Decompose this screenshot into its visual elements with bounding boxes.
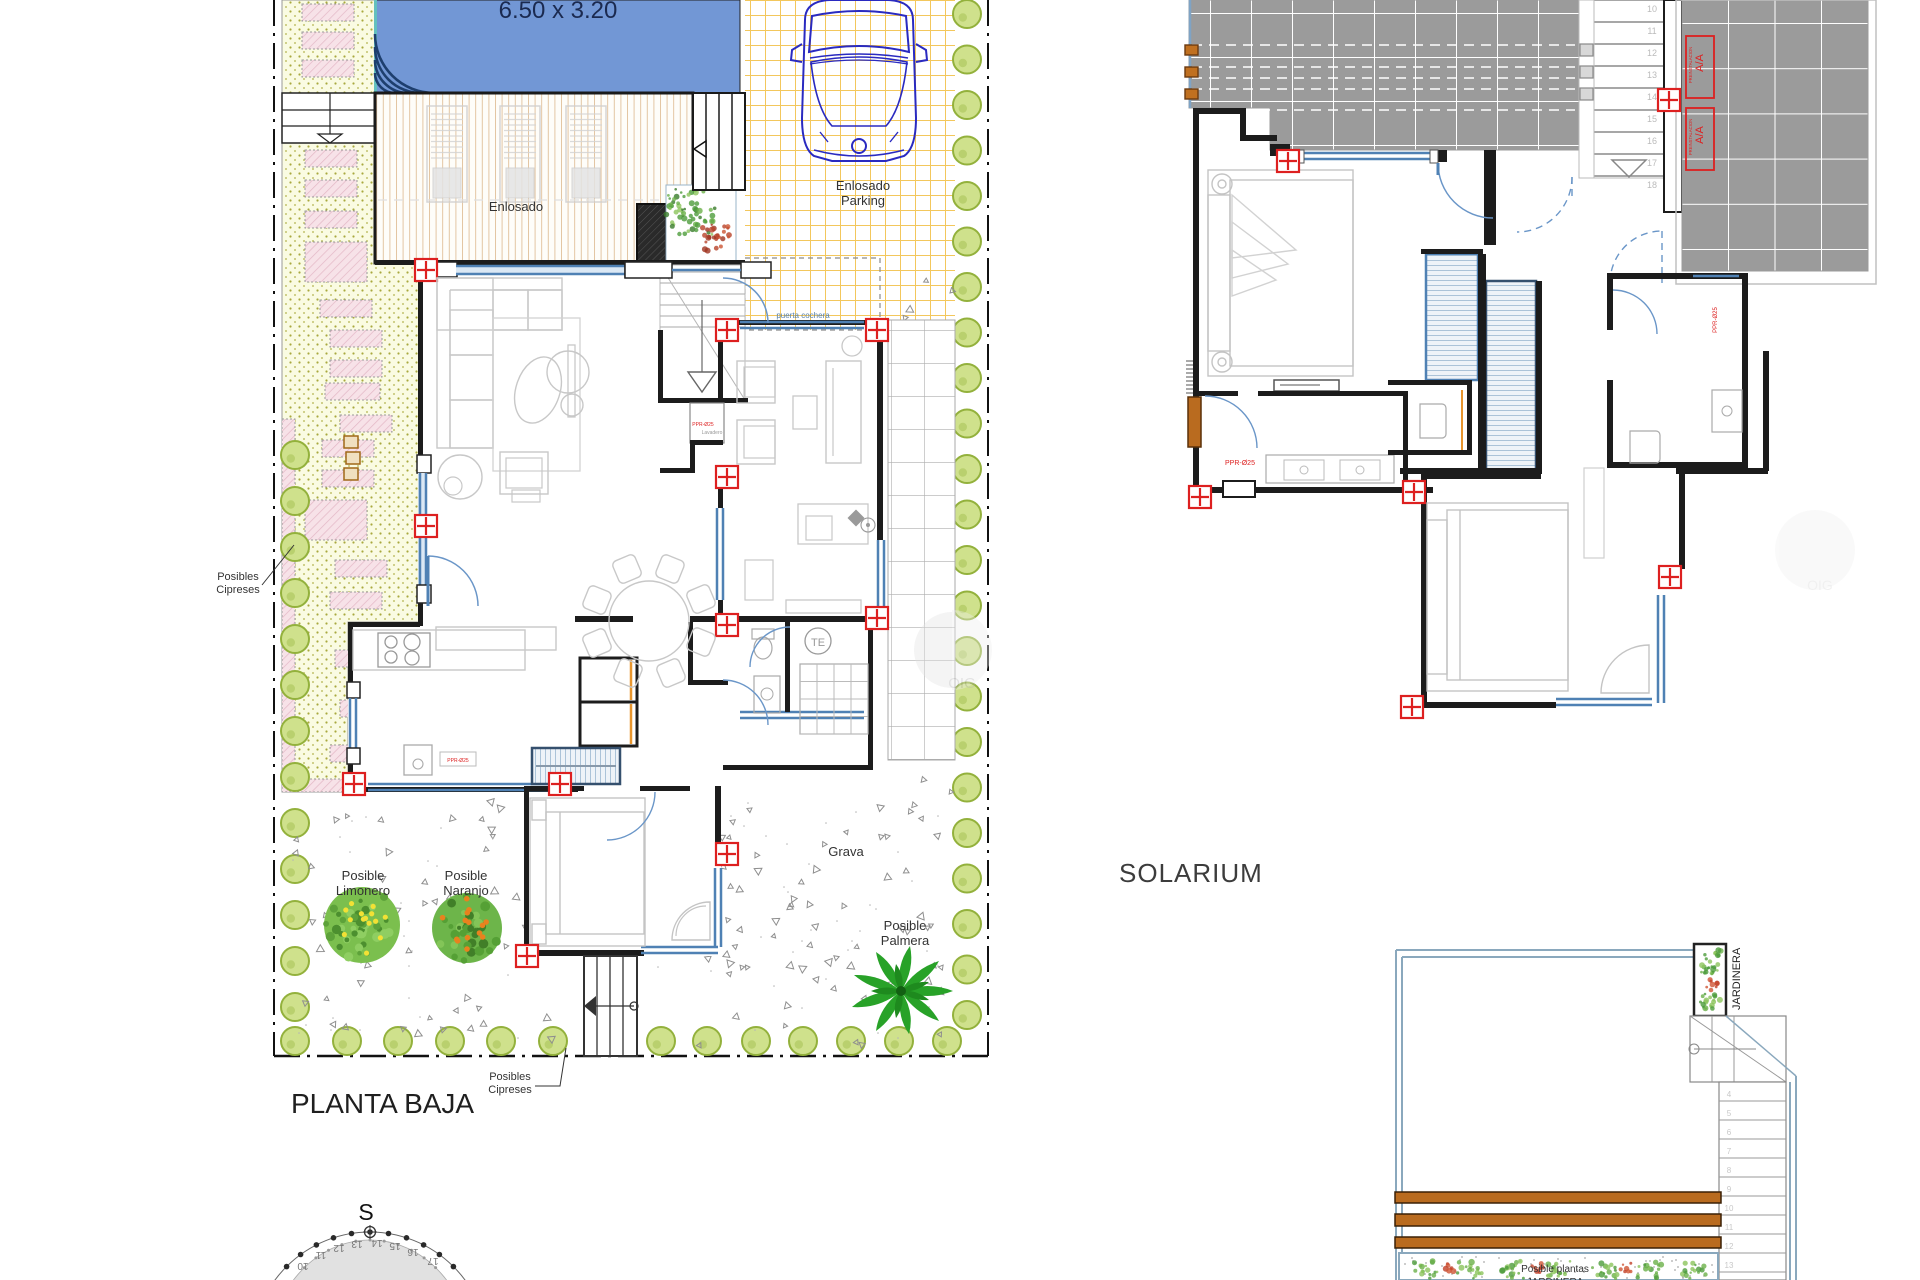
svg-text:6.50 x 3.20: 6.50 x 3.20 — [499, 0, 618, 24]
svg-text:PREINSTALACION: PREINSTALACION — [1688, 47, 1693, 83]
svg-text:OIG: OIG — [1807, 577, 1833, 593]
svg-text:Cipreses: Cipreses — [216, 584, 260, 596]
svg-text:PLANTA BAJA: PLANTA BAJA — [291, 1088, 474, 1119]
svg-text:Grava: Grava — [828, 844, 864, 859]
svg-text:Parking: Parking — [841, 193, 885, 208]
svg-text:puerta cochera: puerta cochera — [776, 311, 830, 320]
svg-text:11: 11 — [1725, 1223, 1734, 1232]
svg-text:Palmera: Palmera — [881, 933, 930, 948]
svg-text:13: 13 — [1647, 70, 1657, 80]
svg-text:Posibles: Posibles — [489, 1071, 531, 1083]
svg-text:Posible: Posible — [884, 918, 927, 933]
svg-text:JARDINERA: JARDINERA — [1731, 947, 1743, 1010]
svg-text:PPR-Ø25: PPR-Ø25 — [447, 758, 469, 764]
svg-text:PREINSTALACION: PREINSTALACION — [1688, 119, 1693, 155]
svg-text:Naranjo: Naranjo — [443, 883, 489, 898]
svg-text:11: 11 — [315, 1249, 326, 1260]
svg-text:TE: TE — [811, 637, 825, 649]
svg-text:6: 6 — [1727, 1128, 1732, 1137]
svg-text:Enlosado: Enlosado — [836, 178, 890, 193]
svg-text:10: 10 — [1647, 4, 1657, 14]
svg-text:5: 5 — [1727, 1109, 1732, 1118]
svg-text:Enlosado: Enlosado — [489, 199, 543, 214]
svg-text:17: 17 — [427, 1255, 439, 1266]
svg-text:Lavadero: Lavadero — [702, 430, 723, 436]
svg-text:9: 9 — [1727, 1185, 1732, 1194]
svg-text:SOLARIUM: SOLARIUM — [1119, 858, 1263, 888]
svg-text:7: 7 — [1727, 1147, 1732, 1156]
svg-text:15: 15 — [389, 1240, 401, 1251]
svg-text:14: 14 — [1647, 92, 1657, 102]
svg-text:11: 11 — [1647, 26, 1656, 36]
svg-text:PPR-Ø25: PPR-Ø25 — [1713, 307, 1719, 333]
svg-text:A/A: A/A — [1694, 125, 1706, 143]
svg-text:S: S — [358, 1199, 373, 1225]
svg-text:Posibles: Posibles — [217, 571, 259, 583]
svg-text:Cipreses: Cipreses — [488, 1084, 532, 1096]
svg-text:17: 17 — [1647, 158, 1657, 168]
svg-text:Limonero: Limonero — [336, 883, 390, 898]
svg-text:A/A: A/A — [1694, 53, 1706, 71]
svg-text:8: 8 — [1727, 1166, 1732, 1175]
svg-text:10: 10 — [297, 1260, 309, 1271]
svg-text:OIG: OIG — [948, 675, 976, 692]
svg-text:13: 13 — [1725, 1261, 1734, 1270]
svg-text:13: 13 — [351, 1238, 363, 1249]
svg-text:12: 12 — [1647, 48, 1657, 58]
svg-text:16: 16 — [407, 1246, 419, 1257]
svg-text:14: 14 — [371, 1237, 383, 1248]
svg-text:15: 15 — [1647, 114, 1657, 124]
svg-text:12: 12 — [1725, 1242, 1734, 1251]
svg-text:Posible: Posible — [445, 868, 488, 883]
svg-text:Posible plantas: Posible plantas — [1521, 1264, 1589, 1275]
svg-text:10: 10 — [1725, 1204, 1734, 1213]
svg-text:4: 4 — [1727, 1090, 1732, 1099]
svg-text:PPR-Ø25: PPR-Ø25 — [1225, 460, 1255, 467]
svg-text:12: 12 — [333, 1242, 345, 1253]
svg-text:Posible: Posible — [342, 868, 385, 883]
svg-text:PPR-Ø25: PPR-Ø25 — [692, 422, 714, 428]
svg-text:16: 16 — [1647, 136, 1657, 146]
svg-text:18: 18 — [1647, 180, 1657, 190]
